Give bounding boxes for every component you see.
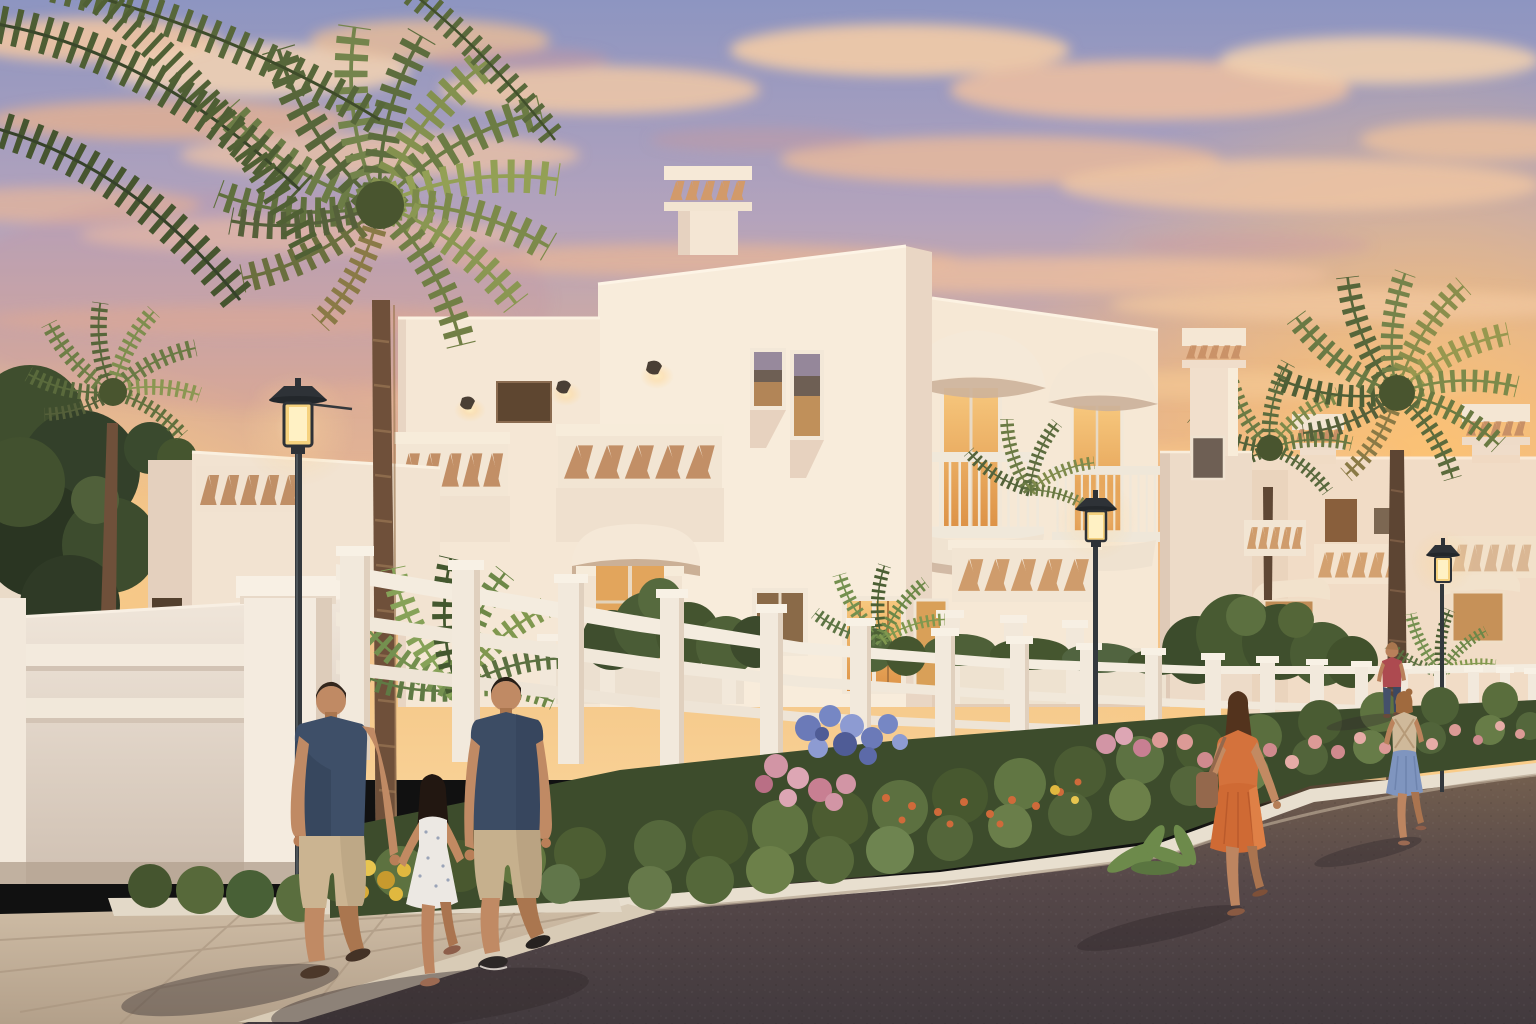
scene-canvas [0,0,1536,1024]
rear-block-window [1192,437,1224,479]
roof-terrace-door [497,382,551,422]
shoulder-bag [1196,772,1218,808]
villa-sunset-render [0,0,1536,1024]
